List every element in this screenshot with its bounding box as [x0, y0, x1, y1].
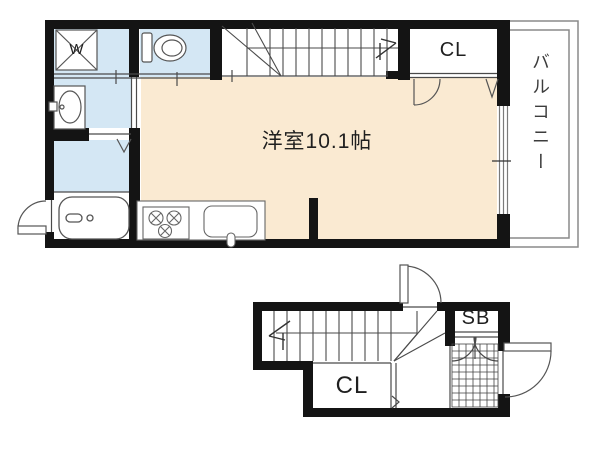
- floorplan-svg: [0, 0, 600, 451]
- washbasin-icon: [49, 86, 85, 129]
- bathtub-icon: [59, 197, 129, 239]
- upper-door-icon: [400, 265, 441, 303]
- upper-stairs-icon: [222, 23, 398, 76]
- balcony-label: バルコニー: [526, 52, 554, 222]
- shoe-box-label: SB: [453, 308, 499, 328]
- kitchen-counter: [137, 201, 265, 247]
- upper-closet-label: CL: [410, 40, 497, 60]
- floorplan-canvas: W CL 洋室10.1帖 バルコニー CL SB: [0, 0, 600, 451]
- room-label: 洋室10.1帖: [167, 131, 467, 152]
- side-door-icon: [18, 201, 46, 234]
- entrance-door-icon: [504, 343, 551, 397]
- lower-floor-plan: [253, 265, 551, 417]
- lower-closet-label: CL: [312, 374, 392, 398]
- stair-direction-arrow: [376, 39, 396, 60]
- lower-stairs-icon: [269, 311, 445, 361]
- stove-icon: [143, 207, 189, 239]
- washing-machine-label: W: [56, 42, 97, 57]
- toilet-icon: [142, 33, 186, 62]
